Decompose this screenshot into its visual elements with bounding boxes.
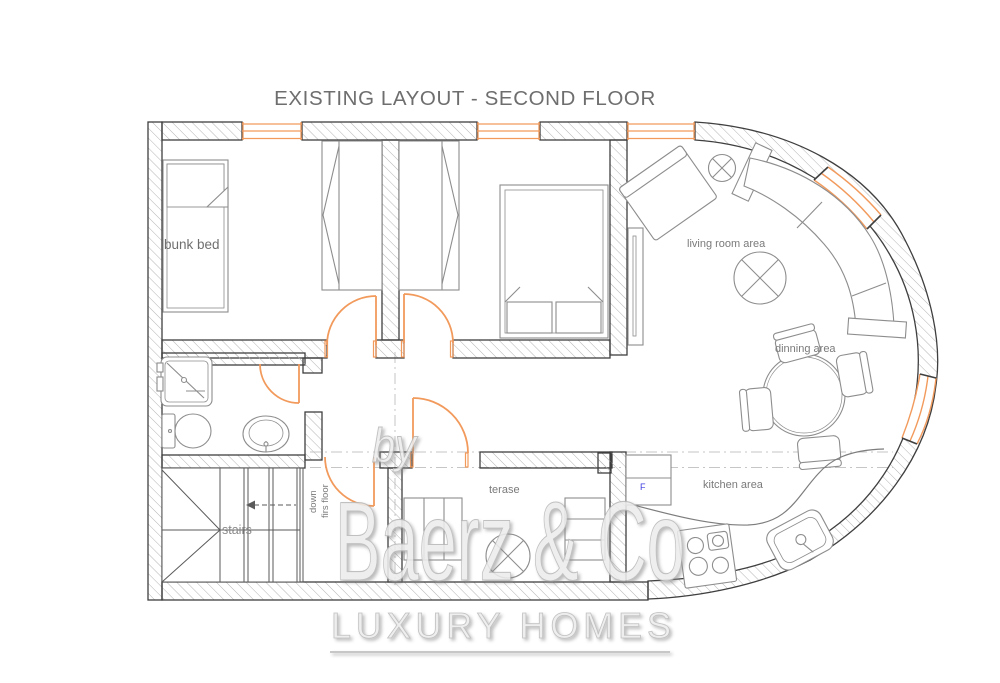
wall-top-seg3: [540, 122, 627, 140]
label-bunk-bed: bunk bed: [164, 237, 220, 252]
bunk-bed: [163, 160, 228, 312]
dining-table: [763, 354, 845, 436]
window-top-1: [242, 122, 302, 140]
wall-bedroom2-east: [610, 140, 627, 355]
door-bedroom2: [404, 294, 453, 343]
label-dining: dinning area: [775, 343, 836, 355]
double-bed: [500, 185, 608, 338]
wall-top-seg2: [302, 122, 477, 140]
armchair: [619, 145, 718, 241]
watermark-by: by: [372, 420, 419, 473]
window-top-2: [477, 122, 540, 140]
label-living-room: living room area: [687, 238, 766, 250]
bathroom-sink: [243, 416, 289, 452]
side-table: [709, 155, 736, 182]
door-terrace: [413, 398, 468, 453]
watermark-tagline: LUXURY HOMES: [331, 605, 671, 646]
dining-chair-west: [739, 387, 774, 432]
wall-left: [148, 122, 162, 600]
label-stairs-note-2: firs floor: [320, 484, 331, 518]
label-stairs: stairs: [222, 523, 252, 537]
wall-stairs-north: [162, 455, 305, 468]
wall-kitchen-stub: [598, 453, 611, 473]
coffee-table: [734, 252, 786, 304]
wall-bathroom-east: [305, 412, 322, 460]
wall-bedroom2-south: [453, 340, 610, 358]
dining-chair-east: [836, 351, 874, 398]
cooktop: [677, 524, 737, 589]
dining-chair-south: [797, 435, 842, 470]
wall-top-seg1: [162, 122, 242, 140]
watermark-brand: Baerz & Co: [335, 479, 685, 604]
wall-panel: [628, 228, 643, 345]
label-kitchen: kitchen area: [703, 479, 764, 491]
wall-terrace-north: [480, 452, 612, 468]
floor-plan-drawing: EXISTING LAYOUT - SECOND FLOOR: [0, 0, 1000, 683]
wardrobe-left: [322, 141, 382, 290]
door-bathroom: [260, 364, 299, 403]
page-title: EXISTING LAYOUT - SECOND FLOOR: [274, 87, 656, 110]
wall-hall-stub: [376, 340, 404, 358]
toilet: [162, 414, 211, 448]
wall-bedrooms-divider: [382, 140, 399, 340]
window-top-3: [627, 122, 695, 140]
shower: [157, 357, 212, 406]
door-bunk-room: [327, 296, 376, 345]
wardrobe-right: [399, 141, 459, 290]
wall-bathroom-jog: [303, 358, 322, 373]
label-stairs-note-1: down: [308, 490, 319, 513]
floor-plan-page: EXISTING LAYOUT - SECOND FLOOR: [0, 0, 1000, 683]
